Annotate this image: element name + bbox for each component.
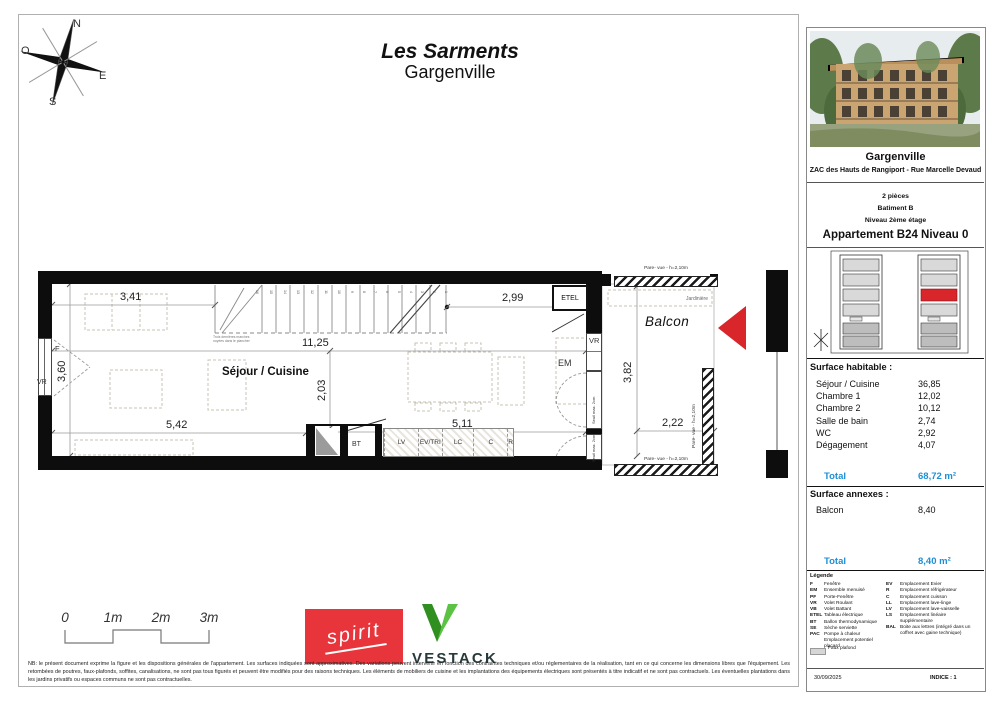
legend-title: Légende — [810, 573, 833, 579]
surface-row-label: Salle de bain — [816, 415, 918, 427]
legend-desc: Porte-Fenêtre — [824, 595, 882, 601]
legend-desc: Volet Battant — [824, 607, 882, 613]
issue-date: 30/09/2025 — [814, 675, 842, 681]
legend-item: R Emplacement réfrigérateur — [886, 588, 978, 594]
stair-number: 14 — [277, 290, 287, 294]
party-wall-bottom — [766, 450, 788, 478]
surface-habitable-rows: Séjour / Cuisine 36,85 Chambre 1 12,02 C… — [816, 378, 976, 451]
dim-11-25: 11,25 — [302, 337, 329, 349]
label-vr-right: VR — [589, 336, 599, 345]
kitchen-counter: LVEV/TRILCCR — [383, 428, 514, 457]
legend-code: PF — [810, 595, 824, 601]
kitchen-cell-label: C — [473, 429, 507, 456]
surface-row: Dégagement 4,07 — [816, 439, 976, 451]
spirit-logo-text: spirit — [321, 618, 387, 654]
surface-row-label: Dégagement — [816, 439, 918, 451]
label-parevue-right: Pare- vue - h=2,10m — [692, 404, 697, 448]
surface-row-value: 2,74 — [918, 415, 976, 427]
stair-number: 13 — [290, 290, 300, 294]
legend-desc: Emplacement lave-vaisselle — [900, 607, 978, 613]
divider — [807, 668, 984, 669]
stair-number: 15 — [263, 290, 273, 294]
stair-number: 11 — [318, 290, 328, 294]
legend-desc: Emplacement linéaire supplémentaire — [900, 613, 978, 624]
label-jardiniere: Jardinière — [650, 296, 708, 302]
project-address: ZAC des Hauts de Rangiport - Rue Marcell… — [807, 167, 984, 174]
dim-5-11: 5,11 — [452, 418, 473, 430]
legend-item: ETEL Tableau électrique — [810, 613, 882, 619]
legend-item: VR Volet Roulant — [810, 601, 882, 607]
legend-code: C — [886, 595, 900, 601]
divider — [807, 247, 984, 248]
legend-item: LV Emplacement lave-vaisselle — [886, 607, 978, 613]
surface-habitable-total-value: 68,72 m² — [918, 471, 956, 482]
floor-plan-sheet: N O E S Les Sarments Gargenville — [0, 0, 1000, 706]
legend-desc: Boite aux lettres (intégré dans un coffr… — [900, 625, 978, 636]
legend-column-2: EV Emplacement Evier R Emplacement réfri… — [886, 582, 978, 637]
stair-number: 16 — [249, 290, 259, 294]
stair-number: 1 — [438, 291, 448, 293]
legend-code: SE — [810, 626, 824, 632]
surface-annexes-total-value: 8,40 m² — [918, 556, 951, 567]
scale-bar — [55, 624, 225, 648]
legend-code: VB — [810, 607, 824, 613]
surface-row: Chambre 1 12,02 — [816, 390, 976, 402]
bt-post-2 — [340, 426, 348, 457]
bt-lintel — [306, 424, 382, 426]
key-plan — [810, 249, 980, 356]
legend-desc: Emplacement cuisson — [900, 595, 978, 601]
stair-number: 6 — [379, 291, 389, 293]
label-f: F — [55, 344, 60, 353]
legend-code: R — [886, 588, 900, 594]
legend-item: C Emplacement cuisson — [886, 595, 978, 601]
kitchen-cell-label: R — [507, 429, 513, 456]
dim-2-22: 2,22 — [662, 417, 683, 429]
etel-label: ETEL — [561, 295, 579, 302]
stair-number: 4 — [403, 291, 413, 293]
surface-row-value: 36,85 — [918, 378, 976, 390]
legend-item: SE Sèche serviette — [810, 626, 882, 632]
surface-row: Séjour / Cuisine 36,85 — [816, 378, 976, 390]
surface-row-value: 10,12 — [918, 402, 976, 414]
etel-box: ETEL — [552, 285, 588, 311]
stair-number: 2 — [426, 291, 436, 293]
closet-shading — [316, 428, 338, 455]
surface-row-label: Balcon — [816, 504, 918, 516]
legend-code: VR — [810, 601, 824, 607]
revision-index: INDICE : 1 — [930, 675, 957, 681]
scale-bar-labels: 01m2m3m — [41, 610, 233, 625]
surface-annexes-rows: Balcon 8,40 — [816, 504, 976, 516]
surface-row-value: 8,40 — [918, 504, 976, 516]
legend-item: BT Ballon thermodynamique — [810, 620, 882, 626]
legend-code: LS — [886, 613, 900, 624]
wall-right-upper — [586, 271, 602, 333]
stair-note: Trois dernières marches noyées dans le p… — [213, 336, 257, 344]
balcony-rail-bottom — [614, 464, 718, 476]
apartment-title: Appartement B24 Niveau 0 — [807, 229, 984, 241]
surface-row: Chambre 2 10,12 — [816, 402, 976, 414]
label-vr-left: VR — [37, 379, 47, 386]
legend-desc: Fenêtre — [824, 582, 882, 588]
surface-annexes-title: Surface annexes : — [810, 489, 889, 499]
legend-desc: Volet Roulant — [824, 601, 882, 607]
label-parevue-bottom: Pare- vue - h=2,10m — [614, 457, 718, 462]
legend-column-1: F Fenêtre EM Ensemble menuisé PF Porte-F… — [810, 582, 882, 650]
project-name: Gargenville — [807, 151, 984, 163]
balcony-cap-left — [602, 274, 611, 286]
vestack-logo-icon — [418, 604, 462, 652]
stair-number: 5 — [391, 291, 401, 293]
stair-number: 10 — [331, 290, 341, 294]
label-seuil-1: Seuil max. 2cm — [591, 397, 596, 424]
kitchen-cell-label: LC — [442, 429, 474, 456]
surface-row: WC 2,92 — [816, 427, 976, 439]
legend-item: LS Emplacement linéaire supplémentaire — [886, 613, 978, 624]
legend-code: LV — [886, 607, 900, 613]
legend-code: BT — [810, 620, 824, 626]
legend-item: LL Emplacement lave-linge — [886, 601, 978, 607]
surface-row-value: 2,92 — [918, 427, 976, 439]
dim-3-82: 3,82 — [622, 362, 634, 383]
stair-number: 7 — [367, 291, 377, 293]
dim-3-60: 3,60 — [56, 361, 68, 382]
surface-annexes-total-label: Total — [824, 556, 846, 567]
faux-plafond-label: Faux plafond — [828, 646, 856, 651]
legend-code: EM — [810, 588, 824, 594]
room-label-balcon: Balcon — [645, 314, 689, 329]
surface-row-label: Chambre 2 — [816, 402, 918, 414]
key-plan-compass-icon — [814, 329, 828, 351]
balcony-rail-right — [702, 368, 714, 468]
window-left — [38, 338, 52, 396]
divider — [807, 182, 984, 183]
legend-desc: Tableau électrique — [824, 613, 882, 619]
label-em: EM — [558, 358, 572, 368]
legend-item: PF Porte-Fenêtre — [810, 595, 882, 601]
legend-code: F — [810, 582, 824, 588]
dim-5-42: 5,42 — [166, 419, 187, 431]
legend-desc: Sèche serviette — [824, 626, 882, 632]
label-parevue-top: Pare- vue - h=2,10m — [614, 266, 718, 271]
legend-desc: Ensemble menuisé — [824, 588, 882, 594]
divider — [807, 570, 984, 571]
stair-number: 12 — [304, 290, 314, 294]
surface-row-label: WC — [816, 427, 918, 439]
legend-desc: Ballon thermodynamique — [824, 620, 882, 626]
legend-desc: Emplacement réfrigérateur — [900, 588, 978, 594]
balcony-rail-top — [614, 276, 718, 287]
room-label-sejour-cuisine: Séjour / Cuisine — [222, 366, 309, 378]
entrance-arrow-icon — [718, 306, 746, 350]
kitchen-cell-label: LV — [384, 429, 418, 456]
label-seuil-2: Seuil max. 2cm — [591, 435, 596, 462]
legend-code: LL — [886, 601, 900, 607]
bt-post-3 — [375, 426, 382, 457]
legend-code: PAC — [810, 632, 824, 638]
surface-row: Balcon 8,40 — [816, 504, 976, 516]
unit-rooms: 2 pièces — [807, 193, 984, 200]
wall-left-upper — [38, 271, 52, 338]
scale-label: 2m — [137, 610, 185, 625]
scale-label: 1m — [89, 610, 137, 625]
faux-plafond-swatch — [810, 648, 826, 655]
legend-code: ETEL — [810, 613, 824, 619]
dim-3-41: 3,41 — [120, 291, 141, 303]
stair-number: 9 — [344, 291, 354, 293]
party-wall-top — [766, 270, 788, 352]
surface-habitable-title: Surface habitable : — [810, 362, 892, 372]
stair-number: 8 — [356, 291, 366, 293]
scale-label: 0 — [41, 610, 89, 625]
stair-numbers: 16151413121110987654321 — [252, 287, 444, 297]
spirit-logo: spirit — [305, 609, 403, 664]
surface-row: Salle de bain 2,74 — [816, 415, 976, 427]
legend-code: BAL — [886, 625, 900, 636]
wall-left-lower — [38, 396, 52, 470]
legend-code: EV — [886, 582, 900, 588]
legend-item: VB Volet Battant — [810, 607, 882, 613]
wall-top — [38, 271, 602, 284]
divider — [807, 358, 984, 359]
divider — [807, 486, 984, 487]
kitchen-cell-label: EV/TRI — [418, 429, 442, 456]
legend-item: EV Emplacement Evier — [886, 582, 978, 588]
legend-desc: Pompe à chaleur — [824, 632, 882, 638]
legend-item: BAL Boite aux lettres (intégré dans un c… — [886, 625, 978, 636]
dim-2-03: 2,03 — [316, 380, 328, 401]
legend-desc: Emplacement Evier — [900, 582, 978, 588]
scale-label: 3m — [185, 610, 233, 625]
building-photo — [810, 31, 980, 147]
unit-level: Niveau 2ème étage — [807, 217, 984, 224]
surface-row-value: 12,02 — [918, 390, 976, 402]
legend-item: PAC Pompe à chaleur — [810, 632, 882, 638]
dim-2-99: 2,99 — [502, 292, 523, 304]
unit-building: Batiment B — [807, 205, 984, 212]
legend-desc: Emplacement lave-linge — [900, 601, 978, 607]
surface-row-label: Chambre 1 — [816, 390, 918, 402]
stair-number: 3 — [414, 291, 424, 293]
disclaimer-text: NB: le présent document exprime la figur… — [28, 660, 790, 684]
legend-item: EM Ensemble menuisé — [810, 588, 882, 594]
key-plan-highlight — [921, 289, 957, 301]
wall-bottom — [38, 456, 586, 470]
legend-item: F Fenêtre — [810, 582, 882, 588]
surface-habitable-total-label: Total — [824, 471, 846, 482]
bt-post-1 — [306, 426, 315, 457]
surface-row-label: Séjour / Cuisine — [816, 378, 918, 390]
label-bt: BT — [352, 441, 361, 448]
surface-row-value: 4,07 — [918, 439, 976, 451]
